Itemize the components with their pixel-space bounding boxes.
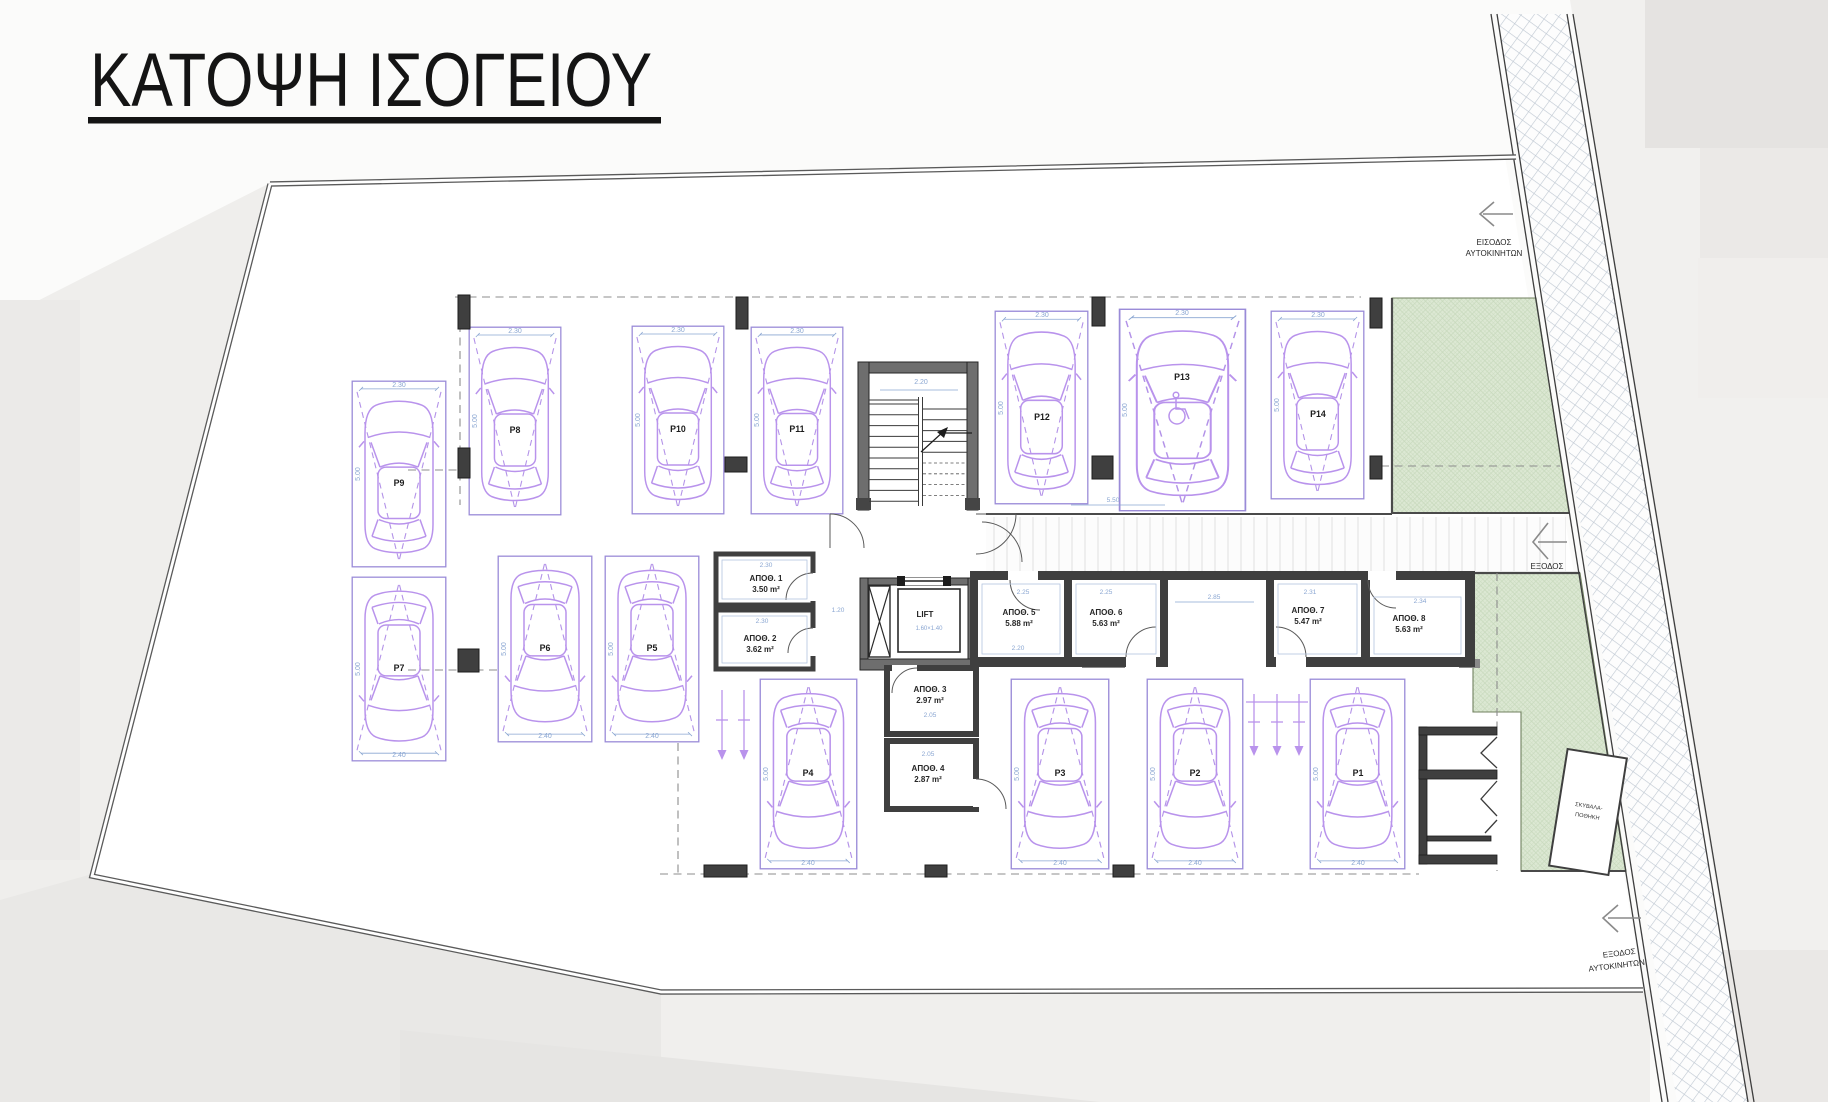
svg-text:P10: P10 xyxy=(670,424,686,434)
svg-text:P9: P9 xyxy=(394,478,405,488)
svg-text:ΑΠΟΘ. 2: ΑΠΟΘ. 2 xyxy=(744,634,777,643)
svg-text:P11: P11 xyxy=(789,424,804,434)
svg-text:2.05: 2.05 xyxy=(922,751,935,758)
svg-text:5.00: 5.00 xyxy=(1274,398,1281,412)
svg-text:2.34: 2.34 xyxy=(1414,598,1427,605)
svg-text:2.20: 2.20 xyxy=(914,379,928,386)
svg-text:2.40: 2.40 xyxy=(392,752,406,759)
svg-text:2.25: 2.25 xyxy=(1017,589,1030,596)
svg-text:5.63 m²: 5.63 m² xyxy=(1092,619,1120,628)
svg-text:5.00: 5.00 xyxy=(763,767,770,781)
svg-text:5.00: 5.00 xyxy=(1122,403,1129,417)
svg-text:2.05: 2.05 xyxy=(924,712,937,719)
svg-text:5.88 m²: 5.88 m² xyxy=(1005,619,1033,628)
svg-text:ΑΠΟΘ. 1: ΑΠΟΘ. 1 xyxy=(750,574,783,583)
svg-text:5.00: 5.00 xyxy=(998,401,1005,415)
svg-text:P6: P6 xyxy=(540,643,551,653)
svg-text:2.30: 2.30 xyxy=(1175,310,1189,317)
svg-text:5.00: 5.00 xyxy=(608,642,615,656)
svg-text:LIFT: LIFT xyxy=(917,610,934,619)
svg-text:ΑΠΟΘ. 6: ΑΠΟΘ. 6 xyxy=(1090,608,1123,617)
svg-text:1.20: 1.20 xyxy=(832,607,845,614)
svg-text:2.40: 2.40 xyxy=(801,860,815,867)
svg-text:P1: P1 xyxy=(1353,768,1364,778)
svg-text:5.00: 5.00 xyxy=(355,662,362,676)
svg-text:5.00: 5.00 xyxy=(1150,767,1157,781)
svg-text:5.00: 5.00 xyxy=(472,414,479,428)
svg-text:2.40: 2.40 xyxy=(538,733,552,740)
svg-text:5.00: 5.00 xyxy=(635,413,642,427)
svg-text:ΑΥΤΟΚΙΝΗΤΩΝ: ΑΥΤΟΚΙΝΗΤΩΝ xyxy=(1466,249,1523,258)
svg-text:2.20: 2.20 xyxy=(1012,645,1025,652)
svg-text:2.25: 2.25 xyxy=(1100,589,1113,596)
svg-text:ΑΠΟΘ. 5: ΑΠΟΘ. 5 xyxy=(1003,608,1036,617)
svg-text:P5: P5 xyxy=(647,643,658,653)
svg-text:2.30: 2.30 xyxy=(392,382,406,389)
svg-text:2.30: 2.30 xyxy=(1311,312,1325,319)
svg-text:2.97 m²: 2.97 m² xyxy=(916,696,944,705)
svg-text:ΑΠΟΘ. 7: ΑΠΟΘ. 7 xyxy=(1292,606,1325,615)
svg-text:2.30: 2.30 xyxy=(790,328,804,335)
svg-text:2.31: 2.31 xyxy=(1304,589,1317,596)
svg-text:2.87 m²: 2.87 m² xyxy=(914,775,942,784)
svg-text:5.63 m²: 5.63 m² xyxy=(1395,625,1423,634)
svg-text:P13: P13 xyxy=(1174,372,1190,382)
svg-text:ΕΞΟΔΟΣ: ΕΞΟΔΟΣ xyxy=(1531,562,1564,571)
svg-text:2.40: 2.40 xyxy=(645,733,659,740)
svg-text:P7: P7 xyxy=(394,663,405,673)
svg-text:2.30: 2.30 xyxy=(671,327,685,334)
svg-text:2.40: 2.40 xyxy=(1351,860,1365,867)
svg-text:1.60×1.40: 1.60×1.40 xyxy=(916,626,944,632)
svg-text:2.30: 2.30 xyxy=(1035,312,1049,319)
svg-text:5.00: 5.00 xyxy=(754,413,761,427)
svg-text:P3: P3 xyxy=(1055,768,1066,778)
svg-text:3.50 m²: 3.50 m² xyxy=(752,585,780,594)
svg-text:2.40: 2.40 xyxy=(1188,860,1202,867)
svg-text:P2: P2 xyxy=(1190,768,1201,778)
svg-text:ΚΑΤΟΨΗ ΙΣΟΓΕΙΟΥ: ΚΑΤΟΨΗ ΙΣΟΓΕΙΟΥ xyxy=(90,38,652,123)
svg-text:ΑΠΟΘ. 4: ΑΠΟΘ. 4 xyxy=(912,764,945,773)
svg-text:ΑΠΟΘ. 3: ΑΠΟΘ. 3 xyxy=(914,685,947,694)
svg-text:5.47 m²: 5.47 m² xyxy=(1294,617,1322,626)
svg-text:P14: P14 xyxy=(1310,409,1326,419)
svg-text:2.30: 2.30 xyxy=(756,618,769,625)
svg-text:5.00: 5.00 xyxy=(1014,767,1021,781)
svg-text:5.00: 5.00 xyxy=(1313,767,1320,781)
svg-text:5.00: 5.00 xyxy=(355,467,362,481)
svg-text:5.50: 5.50 xyxy=(1107,497,1120,504)
svg-text:2.40: 2.40 xyxy=(1053,860,1067,867)
svg-text:5.00: 5.00 xyxy=(501,642,508,656)
svg-text:ΑΠΟΘ. 8: ΑΠΟΘ. 8 xyxy=(1393,614,1426,623)
svg-text:P8: P8 xyxy=(510,425,521,435)
svg-text:2.30: 2.30 xyxy=(508,328,522,335)
svg-text:ΕΙΣΟΔΟΣ: ΕΙΣΟΔΟΣ xyxy=(1477,238,1512,247)
svg-text:P4: P4 xyxy=(803,768,814,778)
svg-text:P12: P12 xyxy=(1034,412,1050,422)
svg-text:2.30: 2.30 xyxy=(760,562,773,569)
svg-text:2.85: 2.85 xyxy=(1208,594,1221,601)
svg-text:3.62 m²: 3.62 m² xyxy=(746,645,774,654)
